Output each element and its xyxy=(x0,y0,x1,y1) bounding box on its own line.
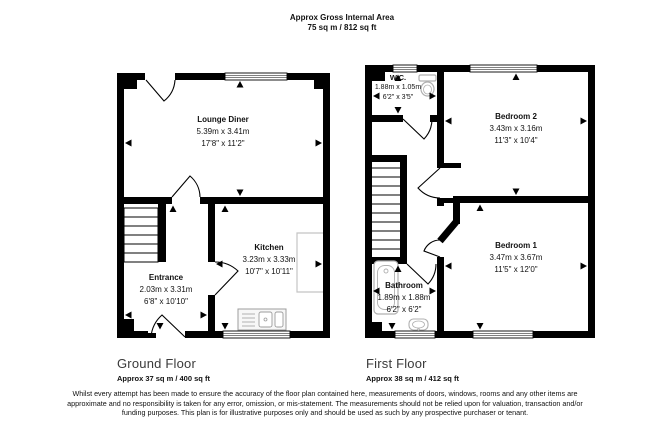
room-label-lounge-diner: Lounge Diner 5.39m x 3.41m 17'8" x 11'2" xyxy=(197,114,250,150)
room-dims-metric: 3.23m x 3.33m xyxy=(243,254,296,266)
room-label-entrance: Entrance 2.03m x 3.31m 6'8" x 10'10" xyxy=(140,272,193,308)
room-label-kitchen: Kitchen 3.23m x 3.33m 10'7" x 10'11" xyxy=(243,242,296,278)
doors xyxy=(403,119,440,284)
room-name: Bedroom 1 xyxy=(490,240,543,252)
room-name: Bathroom xyxy=(378,280,431,292)
room-dims-imperial: 6'2" x 3'5" xyxy=(375,93,421,103)
room-dims-imperial: 10'7" x 10'11" xyxy=(243,266,296,278)
room-dims-metric: 2.03m x 3.31m xyxy=(140,284,193,296)
stairs-icon xyxy=(124,208,166,262)
door-swing xyxy=(215,262,238,295)
bathroom-sink-icon xyxy=(409,319,428,331)
disclaimer-text: Whilst every attempt has been made to en… xyxy=(57,389,593,418)
room-label-bedroom-2: Bedroom 2 3.43m x 3.16m 11'3" x 10'4" xyxy=(490,111,543,147)
room-dims-imperial: 6'8" x 10'10" xyxy=(140,296,193,308)
door-swing xyxy=(424,240,440,257)
room-label-wc: W.C. 1.88m x 1.05m 6'2" x 3'5" xyxy=(375,73,421,103)
door-swing xyxy=(403,119,432,139)
door-swing xyxy=(151,315,185,337)
floor-area: Approx 37 sq m / 400 sq ft xyxy=(117,374,210,383)
kitchen-sink-icon xyxy=(238,309,286,330)
window xyxy=(470,65,537,72)
door-swing xyxy=(146,80,175,101)
toilet-icon xyxy=(419,75,436,96)
floorplan-page: Approx Gross Internal Area 75 sq m / 812… xyxy=(0,0,650,433)
room-dims-imperial: 6'2" x 6'2" xyxy=(378,304,431,316)
door-swing xyxy=(418,168,440,198)
room-name: Kitchen xyxy=(243,242,296,254)
window xyxy=(225,73,287,80)
ground-floor-caption: Ground Floor Approx 37 sq m / 400 sq ft xyxy=(117,356,210,383)
room-dims-imperial: 11'3" x 10'4" xyxy=(490,135,543,147)
door-swing xyxy=(172,176,200,197)
window xyxy=(223,331,290,338)
room-name: Entrance xyxy=(140,272,193,284)
floor-name: Ground Floor xyxy=(117,356,210,371)
first-floor-caption: First Floor Approx 38 sq m / 412 sq ft xyxy=(366,356,459,383)
floor-name: First Floor xyxy=(366,356,459,371)
title-line1: Approx Gross Internal Area xyxy=(192,13,492,23)
stairs-icon xyxy=(372,168,400,249)
room-name: W.C. xyxy=(375,73,421,83)
title-line2: 75 sq m / 812 sq ft xyxy=(192,23,492,33)
room-dims-imperial: 11'5" x 12'0" xyxy=(490,264,543,276)
room-name: Lounge Diner xyxy=(197,114,250,126)
room-dims-metric: 5.39m x 3.41m xyxy=(197,126,250,138)
room-dims-metric: 3.47m x 3.67m xyxy=(490,252,543,264)
room-dims-metric: 1.88m x 1.05m xyxy=(375,83,421,93)
room-dims-imperial: 17'8" x 11'2" xyxy=(197,138,250,150)
room-dims-metric: 1.89m x 1.88m xyxy=(378,292,431,304)
room-label-bedroom-1: Bedroom 1 3.47m x 3.67m 11'5" x 12'0" xyxy=(490,240,543,276)
room-dims-metric: 3.43m x 3.16m xyxy=(490,123,543,135)
window xyxy=(473,331,533,338)
windows xyxy=(223,73,290,338)
room-name: Bedroom 2 xyxy=(490,111,543,123)
page-title: Approx Gross Internal Area 75 sq m / 812… xyxy=(192,13,492,33)
room-label-bathroom: Bathroom 1.89m x 1.88m 6'2" x 6'2" xyxy=(378,280,431,316)
window xyxy=(395,331,435,338)
window xyxy=(393,65,417,72)
floor-area: Approx 38 sq m / 412 sq ft xyxy=(366,374,459,383)
